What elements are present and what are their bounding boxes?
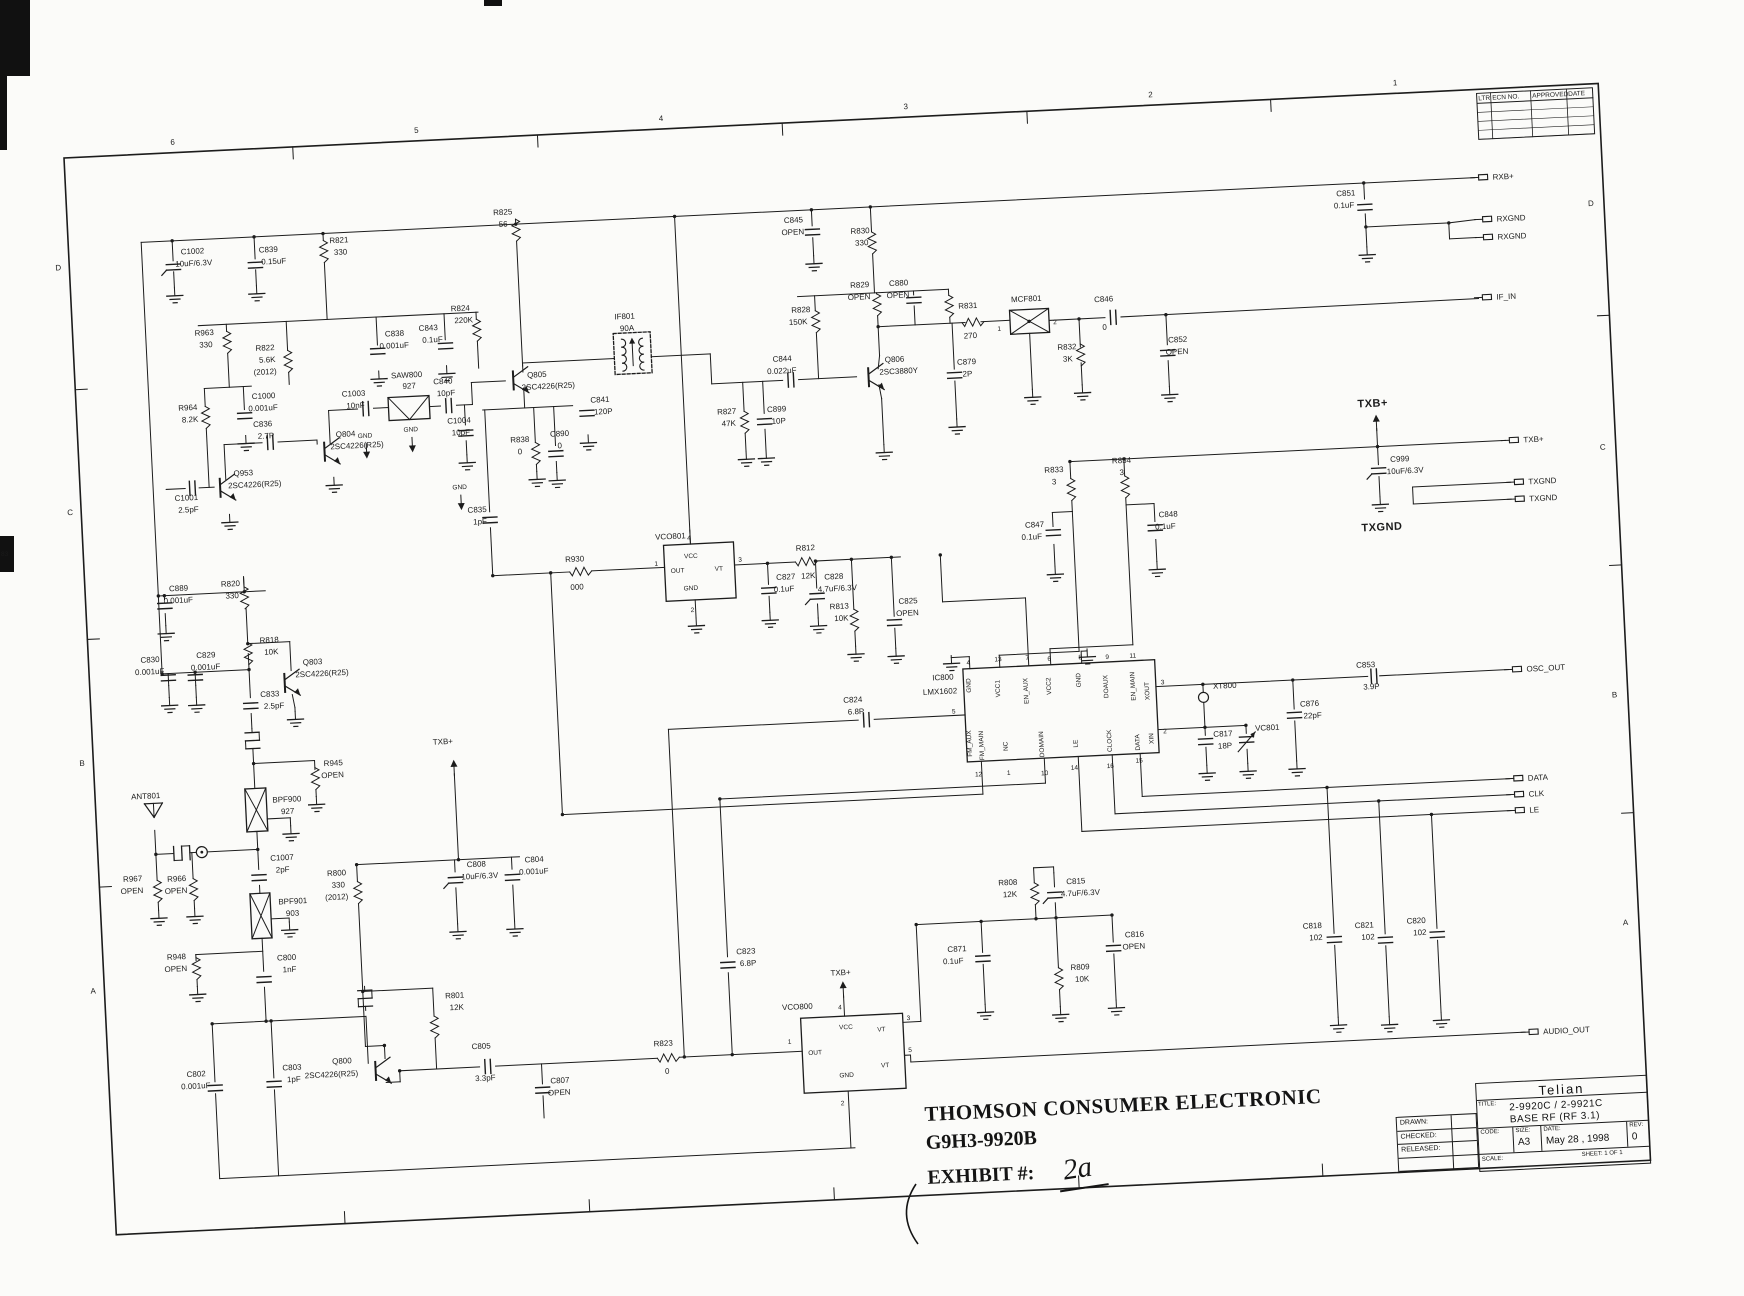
component-label: C843 — [418, 323, 438, 333]
code-label: CODE: — [1480, 1129, 1499, 1136]
size-label: SIZE: — [1515, 1127, 1530, 1134]
revision-header: DATE — [1568, 90, 1586, 98]
ic-name-label: 90A — [620, 324, 635, 334]
component-label: 330 — [855, 238, 869, 248]
component-label: 2SC4226(R25) — [295, 668, 349, 680]
component-label: EN_AUX — [1022, 677, 1030, 704]
component-label: 0 — [1102, 323, 1107, 332]
component-label: R964 — [178, 403, 198, 413]
component-label: Q800 — [332, 1056, 353, 1066]
revision-header: APPROVED — [1532, 91, 1569, 100]
component-label: 0.001uF — [519, 866, 549, 876]
component-label: Q804 — [336, 429, 357, 439]
stamp-paren-mark — [906, 1184, 918, 1244]
component-label: OPEN — [164, 964, 187, 974]
component-label: VCC — [684, 553, 698, 561]
component-label: 120P — [594, 407, 613, 417]
component-label: 1 — [788, 1039, 792, 1046]
component-label: R945 — [323, 758, 343, 768]
component-label: C848 — [1158, 509, 1178, 519]
component-label: 0.1uF — [943, 956, 964, 966]
revision-header: ECN NO. — [1492, 93, 1520, 101]
title-block-main: Telian TITLE: 2-9920C / 2-9921C BASE RF … — [1475, 1075, 1651, 1172]
component-label: 3 — [1052, 477, 1057, 486]
grid-row-label: A — [1623, 918, 1629, 927]
terminal-symbol — [1515, 496, 1524, 502]
component-label: R966 — [167, 874, 187, 884]
grid-row-label: C — [1600, 443, 1606, 452]
component-label: GND — [1075, 672, 1083, 687]
component-label: R827 — [717, 407, 737, 417]
terminal-symbol — [1483, 234, 1492, 240]
ic-name-label: BPF901 — [278, 896, 308, 906]
component-label: 2pF — [276, 865, 290, 875]
terminal-label: RXGND — [1497, 231, 1527, 241]
component-label: 2SC4226(R25) — [521, 380, 575, 392]
component-label: R930 — [565, 554, 585, 564]
component-label: 4 — [687, 535, 691, 542]
terminal-label: LE — [1529, 805, 1539, 814]
ic-name-label: MCF801 — [1011, 294, 1043, 305]
terminal-label: DATA — [1528, 773, 1549, 783]
component-label: OPEN — [847, 292, 870, 302]
component-label: C830 — [140, 655, 160, 665]
component-label: 0.15uF — [261, 256, 286, 266]
component-label: C835 — [467, 505, 487, 515]
component-label: 6.8P — [848, 707, 865, 717]
terminal-label: AUDIO_OUT — [1543, 1025, 1590, 1036]
component-label: 4.7uF/6.3V — [1061, 888, 1101, 899]
ic-name-label: LMX1602 — [923, 686, 958, 697]
component-label: 0.1uF — [1334, 200, 1355, 210]
component-label: C838 — [385, 329, 405, 339]
component-label: 1pF — [473, 517, 487, 527]
component-label: 47K — [721, 419, 736, 429]
title-block: DRAWN: CHECKED: RELEASED: Telian TITLE: … — [1394, 1072, 1651, 1176]
ic-name-label: XT800 — [1213, 681, 1238, 691]
component-label: C823 — [736, 946, 756, 956]
component-label: C827 — [776, 572, 796, 582]
component-label: FM_AUX — [966, 730, 974, 757]
component-label: C1007 — [270, 853, 295, 863]
component-label: 1pF — [287, 1075, 301, 1085]
component-label: C844 — [772, 354, 792, 364]
component-label: C828 — [824, 572, 844, 582]
component-label: C899 — [767, 404, 787, 414]
component-label: EN_MAIN — [1129, 671, 1137, 701]
sheet-border: 654321DDCCBBAALTRECN NO.APPROVEDDATE — [49, 69, 1650, 1236]
component-label: VCC — [839, 1024, 853, 1032]
component-label: C815 — [1066, 876, 1086, 886]
component-label: C841 — [590, 395, 610, 405]
component-label: 2.5pF — [264, 701, 285, 711]
component-label: NC — [1002, 741, 1009, 751]
grid-col-label: 4 — [659, 114, 664, 123]
component-label: R801 — [445, 991, 465, 1001]
schematic-scan-page: 83 654321DDCCBBAALTRECN NO.APPROVEDDATE … — [0, 0, 1744, 1296]
date-label: DATE: — [1543, 1126, 1561, 1133]
component-label: 10pF — [437, 388, 456, 398]
component-label: 1nF — [282, 965, 296, 975]
component-label: 10uF/6.3V — [1387, 465, 1425, 476]
component-label: 3 — [907, 1015, 911, 1022]
component-label: C839 — [258, 245, 278, 255]
terminal-symbol — [1529, 1029, 1538, 1035]
blank-row — [1399, 1155, 1479, 1172]
grid-row-label: B — [1612, 690, 1618, 699]
component-label: 2.7P — [258, 431, 275, 441]
component-label: R830 — [850, 226, 870, 236]
component-label: C804 — [524, 855, 544, 865]
component-label: C851 — [1336, 188, 1356, 198]
component-label: 12K — [449, 1003, 464, 1013]
ic-name-label: VCO801 — [655, 531, 687, 542]
component-label: R838 — [510, 435, 530, 445]
exhibit-handwritten-value: 2a — [1055, 1148, 1109, 1192]
component-label: C853 — [1356, 660, 1376, 670]
component-label: 2 — [691, 607, 695, 614]
component-label: 6 — [1047, 656, 1051, 663]
sheet-label: SHEET: 1 OF 1 — [1582, 1150, 1623, 1158]
component-label: R829 — [850, 280, 870, 290]
component-label: OPEN — [1166, 347, 1189, 357]
component-label: 1 — [1007, 770, 1011, 777]
component-label: C808 — [467, 859, 487, 869]
component-label: 2SC4226(R25) — [228, 479, 282, 491]
component-label: 0.001uF — [191, 662, 221, 672]
component-label: 18P — [1218, 741, 1233, 751]
ic-name-label: SAW800 — [391, 370, 423, 381]
scale-label: SCALE: — [1482, 1156, 1504, 1163]
component-label: 0.022uF — [767, 366, 797, 376]
component-label: C836 — [253, 419, 273, 429]
component-label: 4 — [838, 1004, 842, 1011]
component-label: C807 — [550, 1076, 570, 1086]
component-label: 102 — [1361, 932, 1375, 942]
component-label: GND — [358, 432, 373, 440]
component-label: TXGND — [1361, 521, 1403, 535]
component-label: 220K — [454, 315, 474, 325]
component-label: 0 — [557, 441, 562, 450]
component-label: R967 — [123, 874, 143, 884]
component-label: 11 — [1129, 653, 1136, 660]
component-label: VCC2 — [1045, 677, 1053, 695]
component-label: C817 — [1213, 729, 1233, 739]
component-label: TXB+ — [830, 968, 851, 978]
component-label: 0.001uF — [379, 340, 409, 350]
component-label: 0.001uF — [163, 595, 193, 605]
component-label: VT — [881, 1062, 890, 1069]
component-label: 3 — [1161, 679, 1165, 686]
terminal-symbol — [1478, 174, 1487, 180]
terminal-symbol — [1509, 437, 1518, 443]
component-label: 0.1uF — [774, 584, 795, 594]
terminal-label: TXGND — [1529, 493, 1558, 503]
terminal-label: RXB+ — [1492, 172, 1514, 182]
terminal-symbol — [1483, 216, 1492, 222]
component-label: 6.8P — [740, 958, 757, 968]
terminal-symbol — [1514, 479, 1523, 485]
component-label: R818 — [259, 635, 279, 645]
component-label: 2.5pF — [178, 505, 199, 515]
component-label: 14 — [1071, 765, 1079, 772]
component-label: C845 — [784, 215, 804, 225]
component-label: TXB+ — [1357, 397, 1388, 410]
component-label: C829 — [196, 650, 216, 660]
component-label: C889 — [169, 583, 189, 593]
component-label: 9 — [1105, 654, 1109, 661]
terminal-label: TXGND — [1528, 476, 1557, 486]
component-label: 102 — [1413, 928, 1427, 938]
component-label: DATA — [1134, 733, 1142, 750]
component-label: C890 — [550, 429, 570, 439]
component-label: 102 — [1309, 933, 1323, 943]
component-label: 0.001uF — [181, 1081, 211, 1091]
grid-row-label: D — [1588, 199, 1594, 208]
component-label: C818 — [1303, 921, 1323, 931]
component-label: 5 — [952, 708, 956, 715]
component-label: OPEN — [1122, 941, 1145, 951]
component-label: C825 — [898, 596, 918, 606]
component-label: 270 — [963, 331, 977, 341]
component-label: 330 — [331, 880, 345, 890]
grid-row-label: A — [90, 986, 96, 995]
terminal-symbol — [1514, 775, 1523, 781]
component-label: OUT — [808, 1049, 822, 1057]
terminal-symbol — [1514, 791, 1523, 797]
component-label: C833 — [260, 689, 280, 699]
grid-row-label: B — [79, 759, 85, 768]
component-label: 10pF — [452, 428, 471, 438]
component-label: 0 — [665, 1067, 670, 1076]
component-label: 10nF — [346, 401, 365, 411]
component-label: 8.2K — [182, 415, 200, 425]
component-label: GND — [403, 426, 418, 434]
component-label: VCC1 — [994, 679, 1002, 697]
component-label: C1000 — [252, 391, 277, 401]
component-label: XOUT — [1144, 682, 1152, 700]
component-label: C824 — [843, 695, 863, 705]
component-label: R963 — [194, 328, 214, 338]
component-label: R800 — [327, 868, 347, 878]
component-label: 56 — [499, 220, 509, 229]
ic-name-label: 903 — [286, 908, 300, 918]
grid-col-label: 2 — [1148, 90, 1153, 99]
component-label: 2P — [962, 369, 972, 378]
component-label: 000 — [570, 582, 584, 592]
component-label: 0.1uF — [1155, 522, 1176, 532]
scan-artifacts: 83 — [0, 0, 918, 1244]
component-label: C1004 — [447, 416, 472, 426]
terminal-label: RXGND — [1496, 213, 1526, 223]
terminal-symbol — [1482, 294, 1491, 300]
ic-box-layer — [223, 304, 1174, 1119]
grid-col-label: 6 — [170, 138, 175, 147]
component-label: R834 — [1112, 456, 1132, 466]
component-label: 0.001uF — [248, 403, 278, 413]
component-label: 16 — [1107, 763, 1115, 770]
component-label: C803 — [282, 1063, 302, 1073]
component-label: 5.6K — [259, 355, 277, 365]
component-label: 0.1uF — [1021, 532, 1042, 542]
component-label: C805 — [471, 1041, 491, 1051]
component-label: R832 — [1057, 342, 1077, 352]
component-label: OPEN — [321, 770, 344, 780]
component-label: 150K — [789, 317, 809, 327]
edge-tag: 83 — [1, 551, 9, 558]
component-label: 1 — [654, 561, 658, 568]
component-label: 10 — [1041, 770, 1049, 777]
component-label: C1003 — [342, 389, 367, 399]
component-label: R808 — [998, 878, 1018, 888]
grid-col-label: 5 — [414, 126, 419, 135]
component-label: C1001 — [174, 493, 199, 503]
component-label: R820 — [221, 579, 241, 589]
component-label: R822 — [255, 343, 275, 353]
ic-name-label: ANT801 — [131, 791, 161, 801]
revision-header: LTR — [1478, 95, 1490, 103]
component-label: 8 — [1078, 654, 1082, 661]
component-label: FM_MAIN — [978, 730, 986, 760]
component-label: C821 — [1355, 920, 1375, 930]
terminal-label: IF_IN — [1496, 292, 1516, 302]
component-label: R831 — [958, 301, 978, 311]
component-label: 330 — [334, 247, 348, 257]
component-label: 330 — [199, 340, 213, 350]
grid-row-label: C — [67, 508, 73, 517]
component-label: R825 — [493, 207, 513, 217]
component-label: C802 — [186, 1069, 206, 1079]
ic-name-label: 927 — [281, 807, 295, 817]
signoff-table: DRAWN: CHECKED: RELEASED: — [1396, 1113, 1480, 1173]
component-label: VT — [877, 1026, 886, 1033]
component-label: 0.001uF — [135, 667, 165, 677]
component-label: 0 — [518, 447, 523, 456]
component-label: Q953 — [233, 468, 254, 478]
component-label: 10uF/6.3V — [461, 871, 499, 882]
component-label: 10K — [834, 613, 849, 623]
component-label: 22pF — [1303, 711, 1322, 721]
terminal-symbol — [1512, 666, 1521, 672]
ic-name-label: VCO800 — [782, 1002, 814, 1013]
component-label: OPEN — [896, 608, 919, 618]
component-label: R824 — [451, 303, 471, 313]
component-label: R828 — [791, 305, 811, 315]
component-label: VT — [715, 566, 724, 573]
ic-name-label: 927 — [402, 381, 416, 391]
ic-name-label: BPF900 — [272, 794, 302, 804]
component-label: R833 — [1044, 465, 1064, 475]
terminal-symbol — [1515, 807, 1524, 813]
component-label: C846 — [1094, 294, 1114, 304]
component-label: 5 — [908, 1047, 912, 1054]
component-label: R812 — [796, 543, 816, 553]
component-label: Q805 — [527, 370, 548, 380]
component-label: 3K — [1063, 354, 1074, 363]
component-label: 12K — [801, 571, 816, 581]
component-label: 7 — [1025, 655, 1029, 662]
component-label: 2 — [841, 1100, 845, 1107]
component-label: R823 — [653, 1038, 673, 1048]
component-label: GND — [452, 484, 467, 492]
component-label: R821 — [329, 235, 349, 245]
component-label: Q806 — [885, 354, 906, 364]
grid-col-label: 3 — [903, 102, 908, 111]
component-label: OPEN — [120, 886, 143, 896]
component-label: GND — [683, 585, 698, 593]
terminal-label: CLK — [1528, 789, 1545, 799]
ic-name-label: VC801 — [1255, 723, 1280, 733]
component-label: R809 — [1070, 962, 1090, 972]
grid-col-label: 1 — [1393, 78, 1398, 87]
component-label: OPEN — [548, 1088, 571, 1098]
component-label: 0.1uF — [422, 335, 443, 345]
component-label: GND — [965, 678, 973, 693]
exhibit-stamp: THOMSON CONSUMER ELECTRONIC G9H3-9920B E… — [924, 1082, 1358, 1195]
component-label: DOMAIN — [1038, 731, 1046, 758]
component-label: XIN — [1148, 733, 1156, 744]
component-label: (2012) — [325, 892, 349, 902]
component-label: C880 — [889, 278, 909, 288]
component-label: 330 — [225, 591, 239, 601]
component-label: C1002 — [180, 246, 205, 256]
component-label: 10K — [264, 647, 279, 657]
terminal-label: TXB+ — [1523, 435, 1544, 445]
component-label: (2012) — [253, 367, 277, 377]
component-label: 3.3pF — [475, 1073, 496, 1083]
component-label: 15 — [1135, 757, 1143, 764]
component-label: 2SC4226(R25) — [305, 1069, 359, 1081]
component-label: TXB+ — [433, 737, 454, 747]
component-label: DOAUX — [1102, 674, 1110, 698]
component-label: 12 — [975, 771, 983, 778]
component-label: Q803 — [303, 657, 324, 667]
component-label: OPEN — [164, 886, 187, 896]
exhibit-label: EXHIBIT #: — [927, 1162, 1035, 1189]
component-label: 13 — [994, 656, 1002, 663]
date-value: May 28 , 1998 — [1546, 1133, 1610, 1147]
component-label: R948 — [167, 952, 187, 962]
component-label: C840 — [433, 376, 453, 386]
component-label: C800 — [277, 953, 297, 963]
grid-row-label: D — [55, 263, 61, 272]
rev-label: REV: — [1629, 1122, 1643, 1129]
component-label: 12K — [1003, 890, 1018, 900]
rev-value: 0 — [1632, 1131, 1638, 1142]
component-label: 3.9P — [1363, 682, 1380, 692]
component-label: OPEN — [781, 227, 804, 237]
component-label: 4.7uF/6.3V — [818, 583, 858, 594]
terminal-label: OSC_OUT — [1526, 663, 1565, 674]
component-label: 10P — [771, 416, 786, 426]
component-label: 2SC3880Y — [879, 366, 919, 377]
component-label: OPEN — [886, 290, 909, 300]
component-label: 10K — [1075, 974, 1090, 984]
component-label: C871 — [947, 944, 967, 954]
ic-name-label: IC800 — [932, 672, 954, 682]
component-label: 4 — [966, 660, 970, 667]
component-label: GND — [839, 1072, 854, 1080]
component-label: CLOCK — [1106, 729, 1114, 752]
component-label: C820 — [1406, 916, 1426, 926]
component-label: 10uF/6.3V — [175, 258, 213, 269]
size-value: A3 — [1518, 1136, 1531, 1148]
ic-name-label: IF801 — [614, 311, 635, 321]
component-label: C876 — [1300, 699, 1320, 709]
component-label: C999 — [1390, 454, 1410, 464]
component-label: C816 — [1125, 930, 1145, 940]
component-label: C852 — [1168, 335, 1188, 345]
